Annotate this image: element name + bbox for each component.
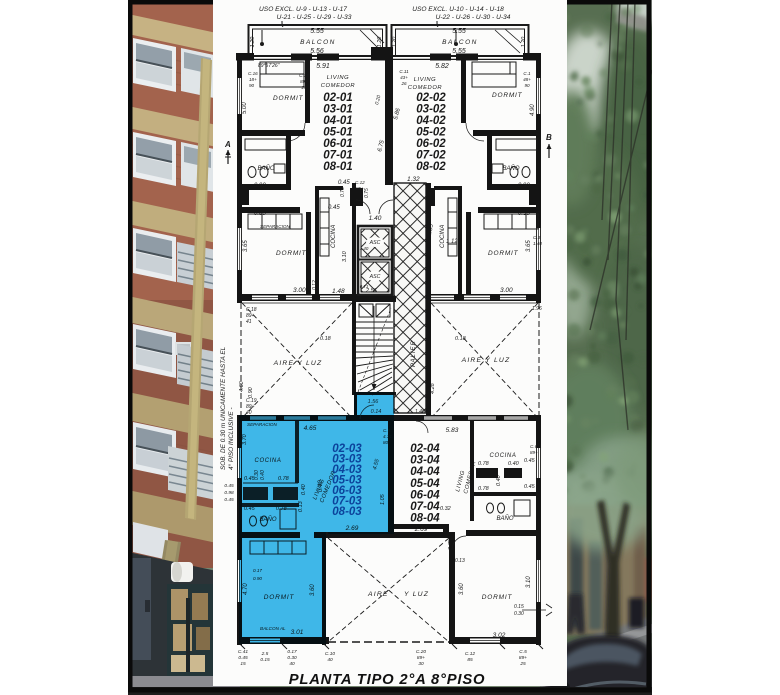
svg-text:LIVING: LIVING — [414, 77, 437, 83]
svg-text:BAÑO: BAÑO — [496, 515, 513, 522]
svg-text:89°57'26": 89°57'26" — [258, 63, 280, 69]
svg-text:AIRE: AIRE — [367, 591, 389, 598]
svg-text:1.12: 1.12 — [446, 239, 458, 245]
svg-text:0.17: 0.17 — [287, 649, 297, 655]
svg-text:0.18: 0.18 — [455, 336, 467, 342]
svg-text:0.78: 0.78 — [478, 486, 490, 492]
svg-text:04-01: 04-01 — [323, 115, 352, 127]
svg-text:1.20: 1.20 — [392, 36, 398, 48]
svg-text:0.45: 0.45 — [328, 205, 340, 211]
svg-text:07-02: 07-02 — [416, 150, 446, 162]
svg-text:90: 90 — [249, 83, 255, 88]
svg-text:48+: 48+ — [523, 77, 531, 82]
svg-text:05-01: 05-01 — [323, 127, 352, 139]
svg-text:40: 40 — [327, 657, 333, 663]
svg-text:BALCON: BALCON — [442, 39, 478, 46]
svg-text:02-02: 02-02 — [416, 92, 446, 104]
svg-text:3.65: 3.65 — [243, 240, 249, 252]
svg-text:5.55: 5.55 — [452, 28, 466, 35]
svg-text:0.45: 0.45 — [224, 483, 234, 489]
svg-text:4.60: 4.60 — [239, 380, 245, 392]
svg-text:A: A — [224, 140, 231, 149]
svg-text:BALCON: BALCON — [300, 39, 336, 46]
svg-text:30: 30 — [418, 661, 424, 667]
svg-text:25: 25 — [519, 661, 526, 667]
svg-text:5.91: 5.91 — [316, 63, 330, 70]
svg-text:5.82: 5.82 — [435, 63, 449, 70]
svg-text:18+: 18+ — [249, 77, 257, 82]
svg-text:BAÑO: BAÑO — [502, 165, 519, 172]
svg-text:DORMIT: DORMIT — [492, 92, 523, 99]
svg-text:C.12: C.12 — [355, 180, 365, 185]
svg-text:4.28: 4.28 — [430, 382, 436, 394]
svg-text:89+: 89+ — [530, 450, 538, 455]
svg-text:41: 41 — [246, 319, 252, 325]
svg-text:3.10: 3.10 — [526, 576, 532, 588]
svg-text:0.12: 0.12 — [312, 280, 318, 290]
svg-text:06-02: 06-02 — [416, 138, 446, 150]
svg-text:1.96: 1.96 — [532, 306, 542, 312]
svg-text:AIRE Y LUZ: AIRE Y LUZ — [461, 357, 511, 364]
svg-text:3.10: 3.10 — [342, 250, 348, 262]
svg-text:C.11: C.11 — [399, 69, 409, 74]
svg-text:LIVING: LIVING — [327, 75, 350, 81]
svg-text:0.32: 0.32 — [440, 506, 451, 512]
svg-text:5.83: 5.83 — [446, 427, 459, 434]
svg-text:1.45: 1.45 — [415, 409, 425, 415]
svg-text:COMEDOR: COMEDOR — [321, 83, 356, 89]
svg-text:C.12: C.12 — [465, 651, 475, 657]
svg-text:0.45: 0.45 — [224, 497, 234, 503]
svg-text:0.98: 0.98 — [224, 490, 234, 496]
svg-text:06-04: 06-04 — [410, 489, 440, 501]
svg-text:04-02: 04-02 — [416, 115, 446, 127]
svg-text:2.69: 2.69 — [414, 526, 428, 533]
svg-text:04-04: 04-04 — [410, 466, 440, 478]
svg-text:DORMIT: DORMIT — [273, 95, 304, 102]
svg-text:3.60: 3.60 — [459, 583, 465, 595]
svg-text:05-04: 05-04 — [410, 478, 440, 490]
svg-text:0.78: 0.78 — [478, 461, 490, 467]
svg-text:0.18: 0.18 — [320, 336, 332, 342]
svg-text:1.20: 1.20 — [377, 36, 383, 48]
svg-text:0.40: 0.40 — [496, 474, 502, 486]
svg-text:C.1: C.1 — [523, 71, 531, 76]
svg-text:89+: 89+ — [300, 79, 308, 84]
svg-text:40: 40 — [289, 661, 295, 667]
svg-text:85: 85 — [467, 657, 473, 663]
svg-text:B: B — [546, 133, 552, 142]
svg-text:0.40: 0.40 — [508, 461, 520, 467]
svg-text:03-04: 03-04 — [410, 455, 440, 467]
svg-text:PLANTA TIPO 2°A 8°PISO: PLANTA TIPO 2°A 8°PISO — [289, 672, 486, 688]
svg-text:08-01: 08-01 — [323, 161, 352, 173]
svg-text:26: 26 — [300, 85, 307, 90]
svg-text:SOB. DE 0.30 m UNICAMENTE HAST: SOB. DE 0.30 m UNICAMENTE HASTA EL — [220, 346, 227, 470]
svg-text:1.20: 1.20 — [521, 36, 527, 48]
svg-text:1.40: 1.40 — [360, 246, 369, 251]
svg-text:C.13: C.13 — [299, 73, 309, 78]
svg-text:AIRE Y LUZ: AIRE Y LUZ — [273, 360, 323, 367]
svg-text:4° PISO INCLUSIVE -: 4° PISO INCLUSIVE - — [227, 407, 235, 470]
svg-text:4.90: 4.90 — [530, 104, 536, 116]
svg-text:U-21 - U-25 - U-29 - U-33: U-21 - U-25 - U-29 - U-33 — [277, 14, 352, 21]
svg-text:1.40: 1.40 — [533, 241, 542, 246]
svg-text:02-04: 02-04 — [410, 443, 440, 455]
svg-text:0.45: 0.45 — [524, 458, 536, 464]
svg-text:0.75: 0.75 — [364, 188, 370, 198]
svg-text:0.90: 0.90 — [518, 183, 530, 189]
svg-text:2.56: 2.56 — [365, 288, 378, 294]
svg-text:1.32: 1.32 — [407, 176, 420, 183]
svg-text:C.5: C.5 — [519, 649, 527, 655]
svg-text:3.65: 3.65 — [526, 240, 532, 252]
svg-text:90: 90 — [524, 83, 530, 88]
svg-text:07-04: 07-04 — [410, 501, 440, 513]
svg-text:1.40: 1.40 — [369, 215, 382, 222]
svg-text:3.00: 3.00 — [293, 287, 306, 294]
svg-text:C.10: C.10 — [325, 651, 335, 657]
svg-text:C.16: C.16 — [248, 71, 258, 76]
svg-text:DORMIT: DORMIT — [488, 250, 519, 257]
svg-text:2.5: 2.5 — [261, 651, 269, 657]
svg-text:USO EXCL. U-9 - U-13 - U-17: USO EXCL. U-9 - U-13 - U-17 — [259, 6, 347, 13]
svg-text:15: 15 — [240, 661, 246, 667]
svg-text:U-22 - U-26 - U-30 - U-34: U-22 - U-26 - U-30 - U-34 — [436, 14, 511, 21]
svg-text:0.30: 0.30 — [287, 655, 297, 661]
svg-text:0.75: 0.75 — [340, 187, 346, 197]
svg-text:0.30: 0.30 — [514, 611, 524, 617]
svg-text:PALIER: PALIER — [411, 340, 417, 367]
svg-text:0.90: 0.90 — [254, 183, 266, 189]
svg-text:Y LUZ: Y LUZ — [404, 591, 429, 598]
svg-text:0.45: 0.45 — [238, 655, 248, 661]
svg-text:0.90: 0.90 — [248, 386, 254, 398]
svg-text:0.45: 0.45 — [524, 484, 536, 490]
svg-text:COCINA: COCINA — [331, 225, 337, 248]
svg-text:0.45: 0.45 — [338, 180, 350, 186]
svg-text:C.6: C.6 — [530, 444, 538, 449]
svg-text:89+: 89+ — [417, 655, 425, 661]
svg-text:06-01: 06-01 — [323, 138, 352, 150]
svg-text:3.00: 3.00 — [500, 287, 513, 294]
svg-text:BAÑO: BAÑO — [257, 165, 274, 172]
svg-text:ASC: ASC — [369, 240, 381, 246]
svg-text:0.15: 0.15 — [260, 657, 270, 663]
svg-text:DORMIT: DORMIT — [482, 594, 513, 601]
svg-text:SEPARACION: SEPARACION — [260, 224, 290, 229]
svg-text:C.3: C.3 — [533, 235, 541, 240]
svg-text:43+: 43+ — [400, 75, 408, 80]
svg-text:02-01: 02-01 — [323, 92, 352, 104]
svg-text:85+: 85+ — [356, 186, 364, 191]
svg-text:08-04: 08-04 — [410, 513, 440, 525]
svg-text:5.00: 5.00 — [242, 102, 248, 114]
svg-text:USO EXCL. U-10 - U-14 - U-18: USO EXCL. U-10 - U-14 - U-18 — [412, 6, 504, 13]
svg-text:C.20: C.20 — [416, 649, 426, 655]
svg-text:DORMIT: DORMIT — [276, 250, 307, 257]
svg-text:C.41: C.41 — [238, 649, 248, 655]
svg-text:26: 26 — [400, 81, 407, 86]
svg-text:0.15: 0.15 — [514, 604, 524, 610]
svg-text:5.55: 5.55 — [310, 28, 324, 35]
svg-text:03-02: 03-02 — [416, 104, 446, 116]
svg-text:05-02: 05-02 — [416, 127, 446, 139]
svg-text:89+: 89+ — [519, 655, 527, 661]
svg-text:1.48: 1.48 — [332, 288, 345, 295]
svg-text:07-01: 07-01 — [323, 150, 352, 162]
svg-text:1.20: 1.20 — [250, 36, 256, 48]
svg-text:ASC: ASC — [369, 274, 381, 280]
svg-text:COMEDOR: COMEDOR — [408, 85, 443, 91]
svg-text:08-02: 08-02 — [416, 161, 446, 173]
svg-text:COCINA: COCINA — [490, 453, 517, 459]
svg-text:03-01: 03-01 — [323, 104, 352, 116]
svg-text:0.13: 0.13 — [455, 558, 465, 564]
